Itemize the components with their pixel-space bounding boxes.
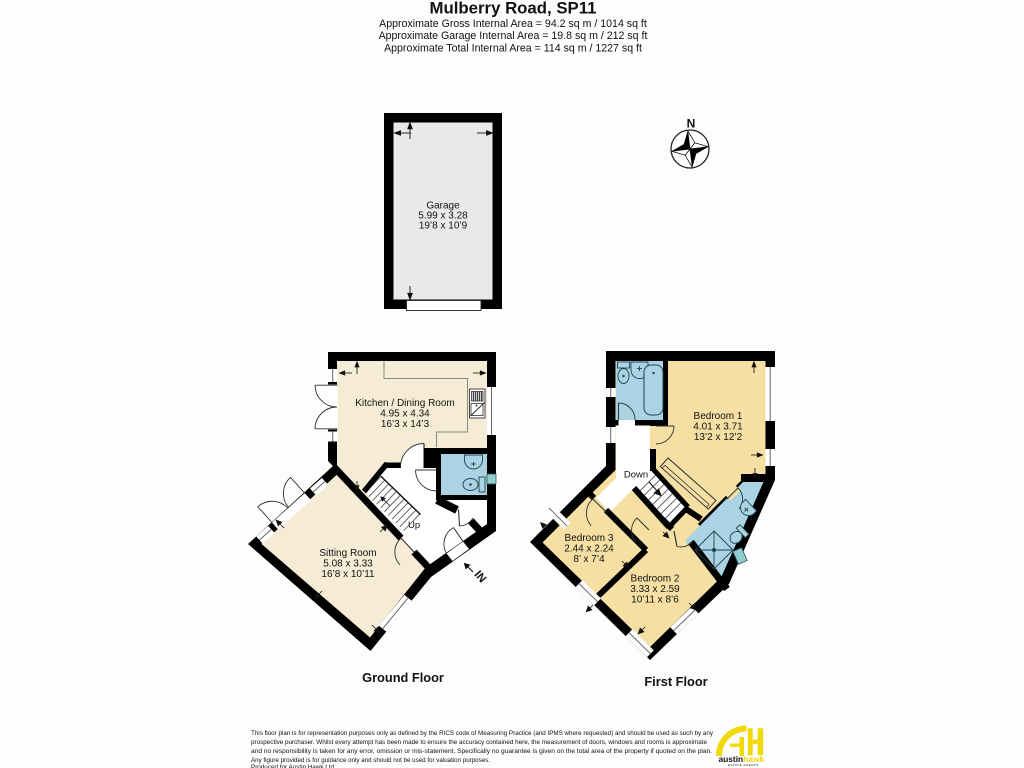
svg-text:Up: Up <box>408 520 420 531</box>
svg-text:2.44 x 2.24: 2.44 x 2.24 <box>564 543 614 554</box>
svg-text:3.33 x 2.59: 3.33 x 2.59 <box>630 584 680 595</box>
svg-text:10’11 x 8’6: 10’11 x 8’6 <box>631 594 679 605</box>
svg-text:5.08 x 3.33: 5.08 x 3.33 <box>323 558 373 569</box>
svg-text:This floor plan is for represe: This floor plan is for representation pu… <box>251 730 714 737</box>
svg-text:Ground Floor: Ground Floor <box>362 670 444 685</box>
svg-text:8’ x 7’4: 8’ x 7’4 <box>573 554 605 565</box>
svg-text:and no responsibility is taken: and no responsibility is taken for any e… <box>251 748 712 755</box>
svg-text:Kitchen / Dining Room: Kitchen / Dining Room <box>355 398 455 409</box>
svg-text:Produced for Austin Hawk Ltd: Produced for Austin Hawk Ltd <box>251 764 334 768</box>
svg-text:Down: Down <box>624 470 648 481</box>
svg-text:ESTATE AGENTS: ESTATE AGENTS <box>728 763 759 767</box>
svg-text:Approximate Total Internal Are: Approximate Total Internal Area = 114 sq… <box>384 42 642 54</box>
svg-text:Approximate Gross Internal Are: Approximate Gross Internal Area = 94.2 s… <box>379 18 647 30</box>
svg-text:N: N <box>687 117 696 131</box>
svg-text:Bedroom 3: Bedroom 3 <box>565 533 614 544</box>
svg-text:Approximate Garage Internal Ar: Approximate Garage Internal Area = 19.8 … <box>379 30 648 42</box>
svg-text:Bedroom 1: Bedroom 1 <box>694 411 743 422</box>
svg-text:13’2 x 12’2: 13’2 x 12’2 <box>694 432 743 443</box>
svg-text:prospective purchaser. Whilst: prospective purchaser. Whilst every atte… <box>251 739 707 746</box>
svg-text:19’8 x 10’9: 19’8 x 10’9 <box>419 221 468 232</box>
svg-text:Mulberry Road, SP11: Mulberry Road, SP11 <box>430 0 597 18</box>
svg-text:16’8 x 10’11: 16’8 x 10’11 <box>321 569 375 580</box>
svg-text:Bedroom 2: Bedroom 2 <box>631 574 680 585</box>
svg-text:Sitting Room: Sitting Room <box>319 548 376 559</box>
svg-text:Any figure provided is for gui: Any figure provided is for guidance only… <box>251 757 490 764</box>
svg-text:16’3 x 14’3: 16’3 x 14’3 <box>381 419 430 430</box>
svg-text:4.95 x 4.34: 4.95 x 4.34 <box>380 408 430 419</box>
svg-text:First Floor: First Floor <box>644 674 707 689</box>
svg-text:4.01 x 3.71: 4.01 x 3.71 <box>693 421 743 432</box>
